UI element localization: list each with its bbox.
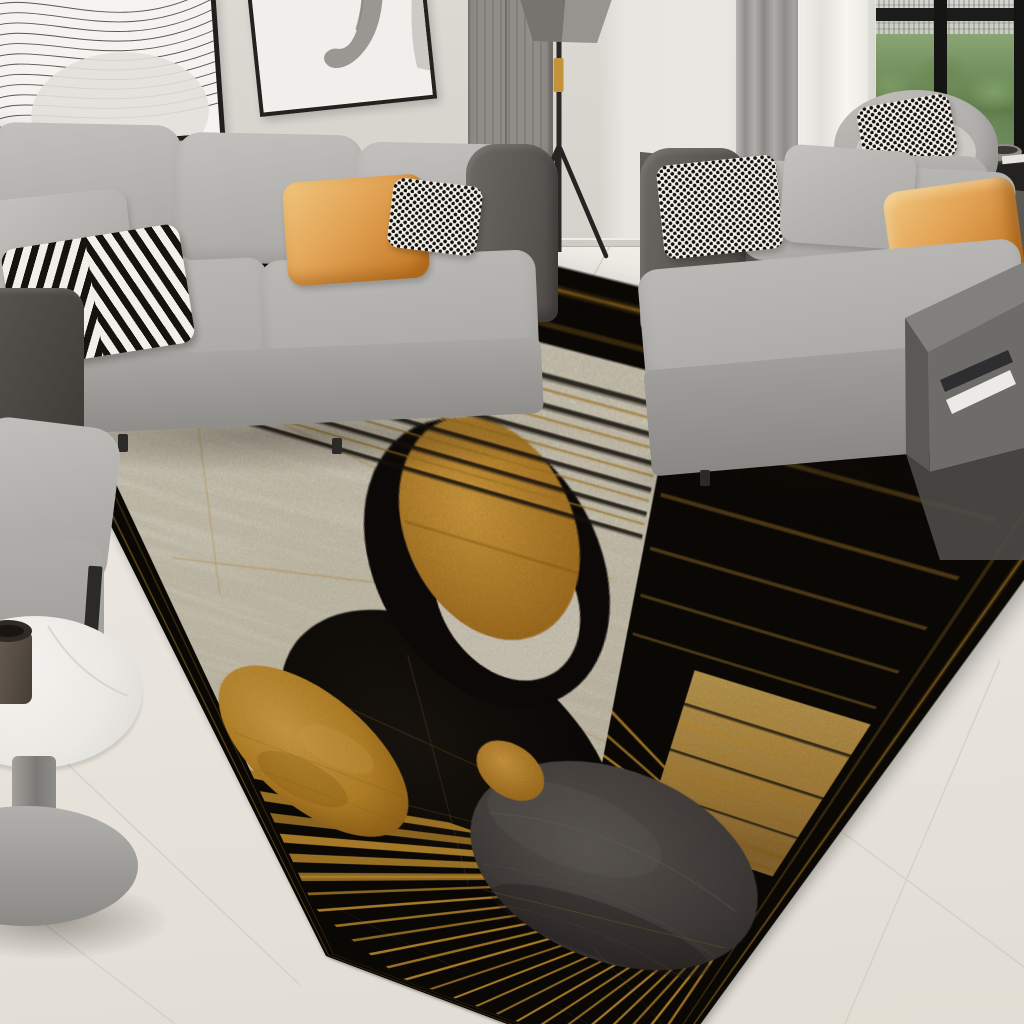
living-room-scene [0,0,1024,1024]
coffee-table [0,0,240,1024]
